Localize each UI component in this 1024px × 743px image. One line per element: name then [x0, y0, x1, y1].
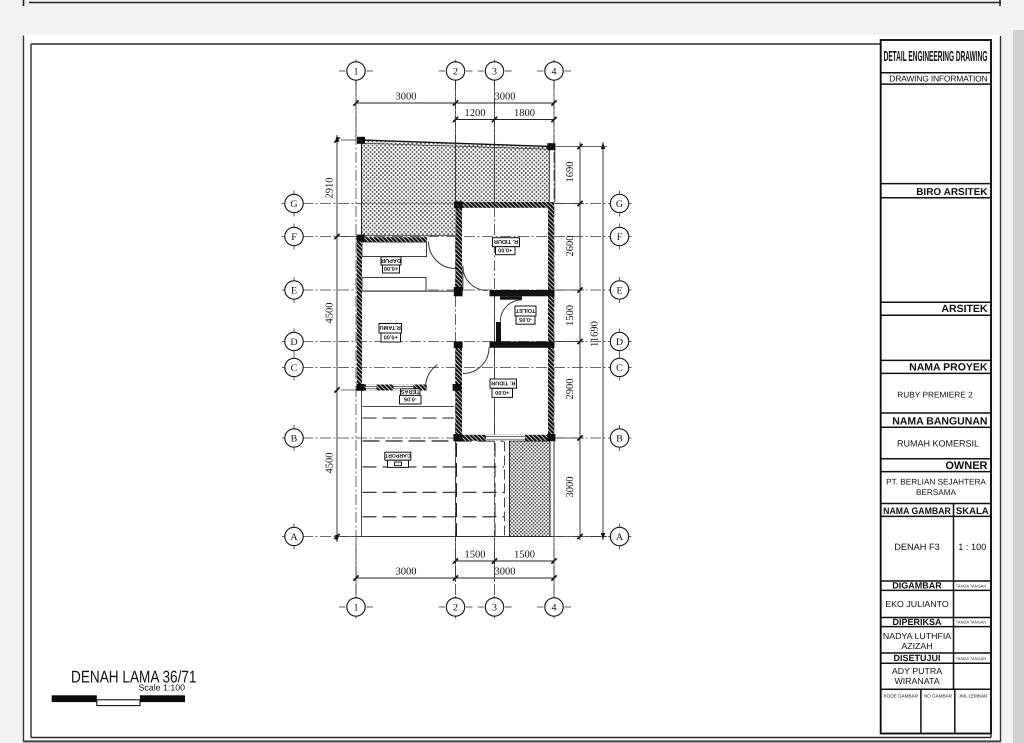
svg-text:2600: 2600: [565, 236, 576, 257]
svg-text:SKALA: SKALA: [956, 506, 989, 517]
svg-text:TANDA TANGAN: TANDA TANGAN: [956, 620, 987, 625]
svg-text:CARPORT: CARPORT: [384, 452, 410, 458]
svg-text:F: F: [617, 232, 623, 243]
svg-text:3: 3: [492, 602, 497, 613]
svg-text:AZIZAH: AZIZAH: [901, 641, 932, 651]
svg-text:1: 1: [354, 602, 359, 613]
svg-text:4: 4: [552, 602, 557, 613]
svg-text:-0.05: -0.05: [404, 396, 417, 402]
svg-text:E: E: [291, 285, 297, 296]
svg-text:NAMA PROYEK: NAMA PROYEK: [909, 361, 988, 373]
svg-text:2: 2: [453, 602, 458, 613]
svg-text:F: F: [291, 232, 297, 243]
svg-text:Scale 1:100: Scale 1:100: [139, 683, 186, 693]
svg-text:B: B: [291, 433, 298, 444]
svg-text:RUBY PREMIERE 2: RUBY PREMIERE 2: [897, 390, 973, 400]
svg-text:R.TAMU: R.TAMU: [380, 324, 401, 330]
svg-text:4500: 4500: [325, 453, 336, 474]
svg-text:3: 3: [492, 66, 497, 77]
svg-text:3000: 3000: [495, 567, 516, 578]
svg-text:3000: 3000: [396, 92, 417, 103]
svg-text:1500: 1500: [565, 305, 576, 326]
svg-text:B: B: [616, 433, 623, 444]
svg-text:G: G: [616, 199, 623, 210]
svg-text:WIRANATA: WIRANATA: [894, 676, 939, 686]
svg-text:KODE GAMBAR: KODE GAMBAR: [884, 693, 919, 698]
svg-text:BIRO ARSITEK: BIRO ARSITEK: [916, 187, 988, 198]
svg-text:+0.00: +0.00: [495, 389, 509, 395]
svg-text:3000: 3000: [565, 477, 576, 498]
svg-text:NAMA GAMBAR: NAMA GAMBAR: [883, 506, 951, 517]
svg-text:2: 2: [453, 66, 458, 77]
svg-text:D: D: [616, 337, 623, 348]
svg-text:BERSAMA: BERSAMA: [916, 488, 957, 497]
svg-text:1200: 1200: [465, 108, 486, 119]
svg-text:NADYA LUTHFIA: NADYA LUTHFIA: [883, 631, 951, 641]
svg-text:NO GAMBAR: NO GAMBAR: [924, 693, 953, 698]
svg-text:C: C: [616, 363, 623, 374]
svg-text:+0.00: +0.00: [384, 333, 398, 339]
svg-text:1800: 1800: [514, 108, 535, 119]
svg-text:1500: 1500: [514, 550, 535, 561]
svg-text:OWNER: OWNER: [945, 460, 987, 472]
svg-text:+0.00: +0.00: [498, 247, 512, 253]
svg-text:EKO JULIANTO: EKO JULIANTO: [885, 599, 949, 609]
svg-text:RUMAH KOMERSIL: RUMAH KOMERSIL: [897, 438, 979, 448]
svg-text:11690: 11690: [590, 321, 601, 347]
svg-text:DISETUJUI: DISETUJUI: [893, 653, 940, 663]
svg-text:2910: 2910: [325, 178, 336, 199]
svg-text:+0.00: +0.00: [384, 265, 398, 271]
svg-text:R. TIDUR: R. TIDUR: [494, 238, 518, 244]
svg-text:TANDA TANGAN: TANDA TANGAN: [956, 656, 987, 661]
svg-text:DIGAMBAR: DIGAMBAR: [892, 581, 942, 591]
svg-text:1: 1: [354, 66, 359, 77]
svg-text:2900: 2900: [565, 379, 576, 400]
svg-text:DRAWING INFORMATION: DRAWING INFORMATION: [889, 74, 987, 84]
svg-text:ADY PUTRA: ADY PUTRA: [892, 666, 942, 676]
svg-text:C: C: [291, 363, 298, 374]
svg-text:TOILET: TOILET: [515, 307, 535, 313]
svg-text:TANDA TANGAN: TANDA TANGAN: [956, 583, 987, 588]
svg-text:-0.05: -0.05: [519, 316, 532, 322]
svg-text:1690: 1690: [565, 162, 576, 183]
svg-text:ARSITEK: ARSITEK: [941, 303, 988, 315]
svg-text:D: D: [290, 337, 297, 348]
svg-text:4: 4: [552, 66, 557, 77]
svg-text:DETAIL ENGINEERING DRAWING: DETAIL ENGINEERING DRAWING: [884, 49, 988, 65]
svg-text:JML LEMBAR: JML LEMBAR: [959, 693, 988, 698]
svg-text:A: A: [290, 532, 298, 543]
svg-text:TERAS: TERAS: [401, 388, 420, 394]
svg-text:PT. BERLIAN SEJAHTERA: PT. BERLIAN SEJAHTERA: [886, 478, 986, 487]
svg-text:DAPUR: DAPUR: [381, 257, 401, 263]
svg-text:NAMA BANGUNAN: NAMA BANGUNAN: [892, 416, 987, 428]
svg-text:G: G: [290, 199, 297, 210]
svg-text:DIPERIKSA: DIPERIKSA: [892, 617, 942, 627]
svg-text:4500: 4500: [325, 303, 336, 324]
svg-text:1 : 100: 1 : 100: [958, 542, 986, 552]
svg-text:R. TIDUR: R. TIDUR: [491, 380, 515, 386]
svg-text:3000: 3000: [495, 92, 516, 103]
svg-text:3000: 3000: [396, 567, 417, 578]
svg-text:1500: 1500: [465, 550, 486, 561]
svg-text:A: A: [616, 532, 624, 543]
svg-text:DENAH F3: DENAH F3: [894, 542, 939, 552]
svg-text:E: E: [616, 285, 622, 296]
